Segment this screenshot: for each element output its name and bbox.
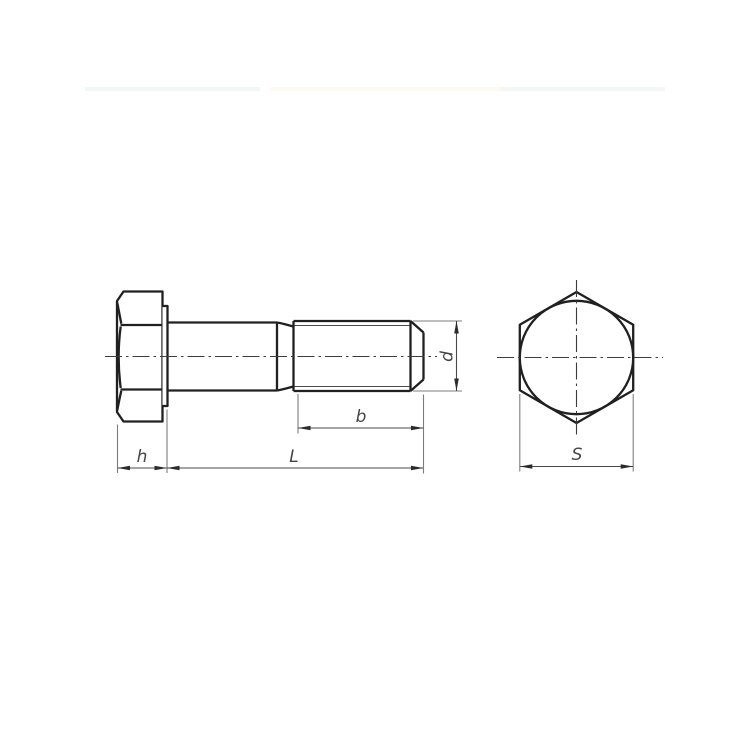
arrowhead-right <box>411 426 424 431</box>
arrowhead-left <box>520 464 533 469</box>
thread-runout-top <box>277 323 294 327</box>
hex-bolt-technical-drawing: h L b d S <box>0 0 750 750</box>
arrowhead-right <box>155 466 168 471</box>
arrowhead-left <box>118 466 131 471</box>
arrowhead-right <box>621 464 634 469</box>
arrowhead-bottom <box>454 379 459 392</box>
arrowhead-right <box>411 466 424 471</box>
watermark-segment <box>270 87 500 91</box>
dimension-label-d: d <box>438 351 458 362</box>
drawing-canvas: h L b d S <box>0 0 750 750</box>
dimension-head-height: h <box>118 425 168 474</box>
watermark-segment <box>85 87 260 91</box>
bolt-end-view <box>497 280 663 437</box>
bolt-side-view <box>105 292 437 422</box>
dimension-label-b: b <box>356 407 367 427</box>
watermark-segment <box>500 87 665 91</box>
dimension-label-L: L <box>289 447 298 467</box>
watermark-smudge <box>85 87 665 91</box>
dimension-total-length: L <box>167 410 424 474</box>
thread-end-chamfer-bottom <box>411 380 424 392</box>
arrowhead-left <box>298 426 311 431</box>
arrowhead-left <box>167 466 180 471</box>
arrowhead-top <box>454 321 459 334</box>
thread-end-chamfer-top <box>411 321 424 333</box>
dimension-thread-length: b <box>298 394 424 474</box>
dimension-label-S: S <box>572 445 583 465</box>
thread-runout-bottom <box>277 387 294 391</box>
dimension-label-h: h <box>137 447 148 467</box>
